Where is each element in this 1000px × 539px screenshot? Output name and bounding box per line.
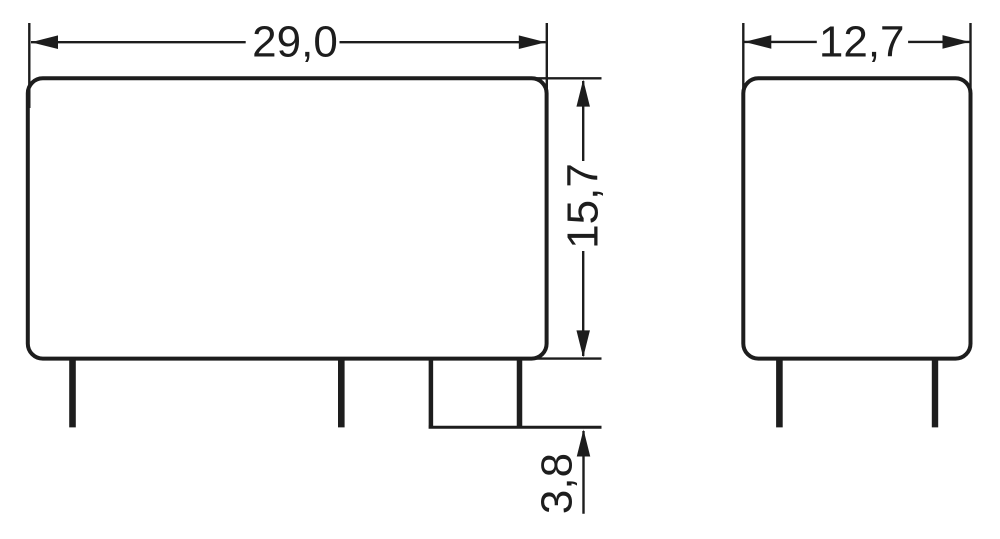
svg-text:29,0: 29,0	[252, 17, 338, 66]
svg-text:12,7: 12,7	[819, 17, 905, 66]
svg-text:15,7: 15,7	[558, 163, 607, 249]
svg-text:3,8: 3,8	[532, 453, 581, 514]
